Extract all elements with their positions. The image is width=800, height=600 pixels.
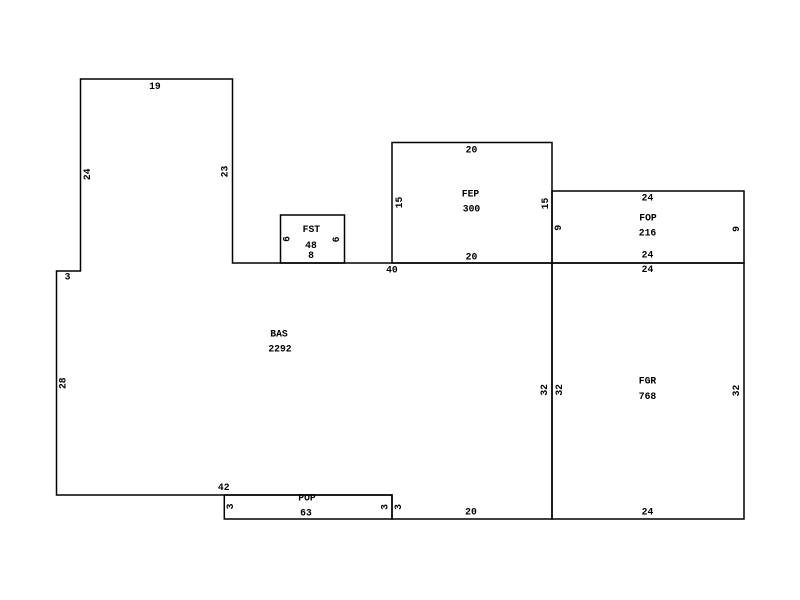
svg-text:2292: 2292 bbox=[268, 344, 291, 355]
svg-text:15: 15 bbox=[540, 198, 551, 210]
svg-text:19: 19 bbox=[149, 81, 161, 92]
svg-text:3: 3 bbox=[393, 504, 404, 510]
svg-text:24: 24 bbox=[642, 507, 654, 518]
svg-text:FEP: FEP bbox=[462, 189, 480, 200]
svg-text:9: 9 bbox=[553, 225, 564, 231]
svg-text:20: 20 bbox=[466, 145, 478, 156]
svg-text:32: 32 bbox=[539, 384, 550, 396]
svg-text:768: 768 bbox=[639, 391, 657, 402]
svg-text:3: 3 bbox=[379, 504, 390, 510]
svg-text:24: 24 bbox=[642, 264, 654, 275]
svg-text:20: 20 bbox=[466, 252, 478, 263]
svg-text:FOP: FOP bbox=[639, 213, 657, 224]
svg-text:3: 3 bbox=[225, 503, 236, 509]
svg-text:24: 24 bbox=[642, 193, 654, 204]
svg-text:23: 23 bbox=[220, 166, 231, 178]
svg-text:15: 15 bbox=[394, 197, 405, 209]
svg-text:FST: FST bbox=[303, 224, 321, 235]
svg-text:40: 40 bbox=[386, 265, 398, 276]
svg-text:20: 20 bbox=[465, 507, 477, 518]
svg-text:6: 6 bbox=[282, 236, 293, 242]
svg-text:216: 216 bbox=[639, 228, 657, 239]
svg-text:42: 42 bbox=[218, 482, 230, 493]
svg-text:FGR: FGR bbox=[639, 376, 657, 387]
svg-text:9: 9 bbox=[731, 226, 742, 232]
svg-text:32: 32 bbox=[554, 384, 565, 396]
svg-text:3: 3 bbox=[65, 272, 71, 283]
svg-text:POP: POP bbox=[298, 493, 316, 504]
svg-text:BAS: BAS bbox=[270, 328, 288, 339]
svg-text:32: 32 bbox=[731, 385, 742, 397]
svg-text:24: 24 bbox=[82, 168, 93, 180]
svg-text:24: 24 bbox=[642, 250, 654, 261]
svg-text:28: 28 bbox=[58, 377, 69, 389]
svg-text:300: 300 bbox=[463, 204, 481, 215]
svg-text:63: 63 bbox=[300, 508, 312, 519]
svg-text:8: 8 bbox=[308, 250, 314, 261]
svg-text:6: 6 bbox=[331, 236, 342, 242]
